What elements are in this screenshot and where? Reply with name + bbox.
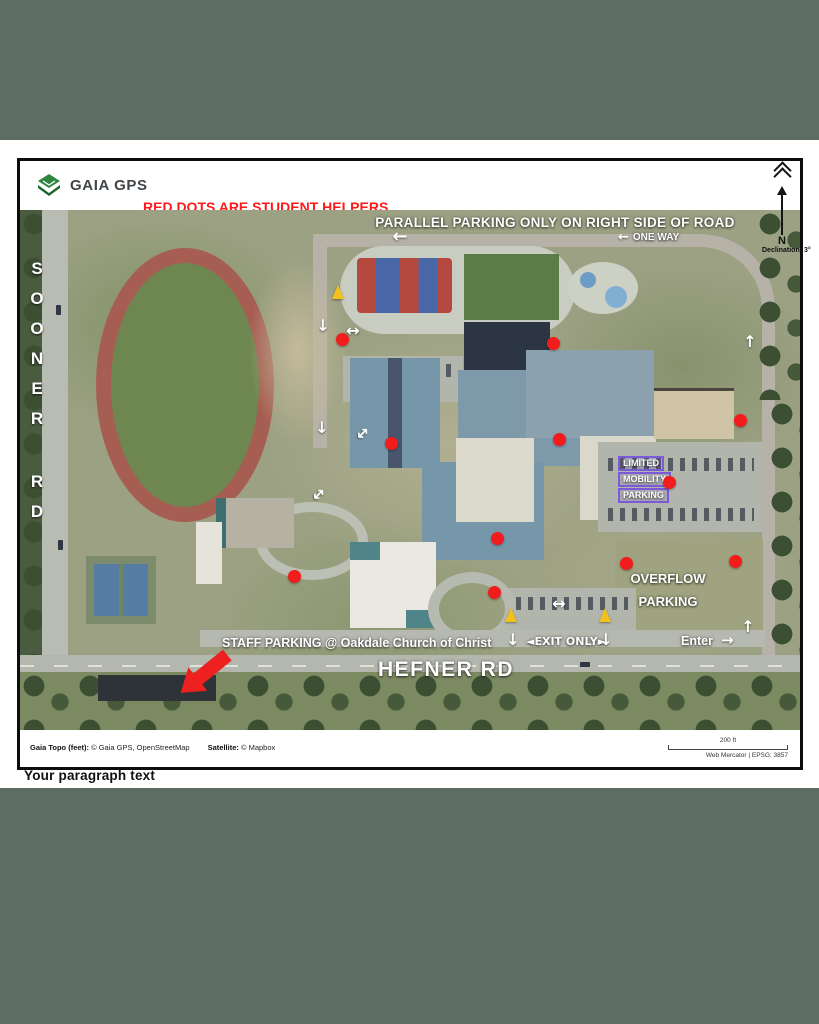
scale-bar-line bbox=[668, 745, 788, 750]
yellow-cone-do-not-enter bbox=[332, 285, 344, 299]
enter-arrow-icon: → bbox=[721, 633, 734, 648]
label-hefner-rd: HEFNER RD bbox=[378, 658, 514, 682]
red-dot-student-helper bbox=[663, 476, 676, 489]
paragraph-text-placeholder[interactable]: Your paragraph text bbox=[24, 768, 155, 783]
projection-label: Web Mercator | EPSG: 3857 bbox=[668, 752, 788, 759]
red-dot-student-helper bbox=[336, 333, 349, 346]
tree-row-east bbox=[768, 400, 800, 655]
red-dot-student-helper bbox=[288, 570, 301, 583]
north-label: N bbox=[762, 235, 802, 247]
yellow-cone-do-not-enter bbox=[599, 608, 611, 622]
declination-label: Declination: 3° bbox=[762, 247, 802, 254]
pool-circle bbox=[605, 286, 627, 308]
red-dot-student-helper bbox=[547, 337, 560, 350]
scale-label: 200 ft bbox=[668, 737, 788, 744]
label-enter: Enter → bbox=[681, 633, 734, 648]
canvas-band-bottom bbox=[0, 788, 819, 1024]
yellow-cone-do-not-enter bbox=[505, 608, 517, 622]
scale-bar: 200 ft Web Mercator | EPSG: 3857 bbox=[668, 737, 788, 759]
red-dot-student-helper bbox=[488, 586, 501, 599]
car bbox=[56, 305, 61, 315]
red-dot-student-helper bbox=[553, 433, 566, 446]
outbuilding bbox=[196, 522, 222, 584]
north-arrow-shaft bbox=[781, 195, 784, 235]
school-white-roof-core bbox=[456, 438, 534, 522]
one-way-arrow-icon: ← bbox=[618, 231, 629, 244]
map-attribution: Gaia Topo (feet): © Gaia GPS, OpenStreet… bbox=[30, 743, 275, 752]
traffic-direction-arrow-icon: ↓ bbox=[599, 632, 612, 648]
brand-name: GAIA GPS bbox=[70, 177, 148, 194]
church-roof-accent bbox=[350, 542, 380, 560]
gaia-gps-logo: GAIA GPS bbox=[36, 172, 148, 198]
traffic-direction-arrow-icon: ← bbox=[392, 228, 407, 246]
north-arrowhead-icon bbox=[777, 186, 787, 195]
label-overflow-parking: OVERFLOW PARKING bbox=[608, 571, 728, 609]
label-staff-parking: STAFF PARKING @ Oakdale Church of Christ bbox=[222, 636, 491, 650]
sign-line: PARKING bbox=[618, 488, 669, 503]
school-east-wing bbox=[526, 350, 654, 438]
car bbox=[580, 662, 590, 667]
splash-pad bbox=[568, 262, 638, 314]
traffic-direction-arrow-icon: ↑ bbox=[743, 334, 756, 350]
red-dot-student-helper bbox=[734, 414, 747, 427]
map-export-card: GAIA GPS RED DOTS ARE STUDENT HELPERS YE… bbox=[17, 158, 803, 770]
map-canvas: PARALLEL PARKING ONLY ON RIGHT SIDE OF R… bbox=[20, 210, 800, 730]
red-dot-student-helper bbox=[491, 532, 504, 545]
card-header: GAIA GPS RED DOTS ARE STUDENT HELPERS YE… bbox=[20, 161, 800, 210]
label-one-way: ← ONE WAY bbox=[618, 231, 679, 244]
card-footer: Gaia Topo (feet): © Gaia GPS, OpenStreet… bbox=[20, 730, 800, 767]
traffic-direction-arrow-icon: ↓ bbox=[316, 318, 329, 334]
red-dot-student-helper bbox=[620, 557, 633, 570]
canvas-band-top bbox=[0, 0, 819, 140]
traffic-direction-arrow-icon: ↓ bbox=[315, 420, 328, 436]
red-dot-student-helper bbox=[729, 555, 742, 568]
car bbox=[58, 540, 63, 550]
traffic-direction-arrow-icon: ↔ bbox=[552, 596, 565, 612]
track-field bbox=[96, 248, 274, 522]
traffic-direction-arrow-icon: ↓ bbox=[506, 632, 519, 648]
school-west-wing bbox=[350, 358, 440, 468]
playground-court bbox=[357, 258, 452, 313]
label-exit-only: ◄EXIT ONLY► bbox=[526, 635, 606, 648]
gym-building bbox=[216, 498, 294, 548]
sign-line: LIMITED bbox=[618, 456, 664, 471]
north-arrow: N Declination: 3° bbox=[762, 164, 802, 254]
label-sooner-rd: SOONERRD bbox=[24, 260, 50, 520]
tennis-courts bbox=[94, 564, 148, 616]
portable-building bbox=[654, 388, 734, 439]
traffic-direction-arrow-icon: ↑ bbox=[741, 619, 754, 635]
practice-field bbox=[464, 254, 559, 320]
red-dot-student-helper bbox=[385, 437, 398, 450]
pool-circle bbox=[580, 272, 596, 288]
gaia-layers-icon bbox=[36, 172, 62, 198]
